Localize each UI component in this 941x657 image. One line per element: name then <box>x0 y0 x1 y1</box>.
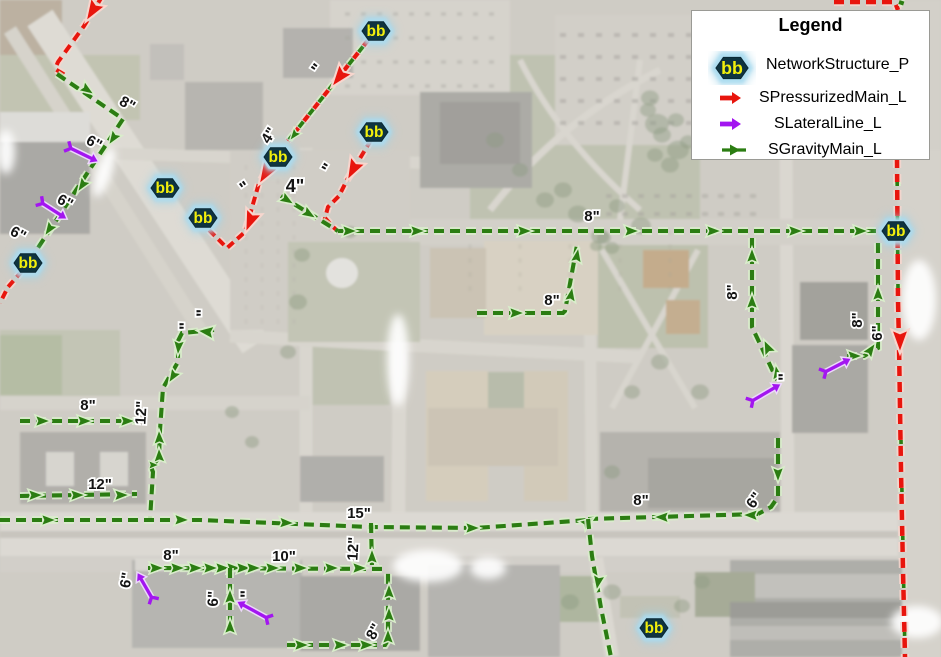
svg-text:bb: bb <box>721 58 743 78</box>
svg-text:bb: bb <box>365 124 384 141</box>
svg-text:8": 8" <box>163 547 178 564</box>
svg-text:6": 6" <box>117 571 136 589</box>
svg-text:8": 8" <box>544 292 559 309</box>
svg-text:": " <box>193 309 212 317</box>
svg-text:": " <box>176 322 195 330</box>
svg-text:": " <box>775 373 794 381</box>
svg-text:15": 15" <box>347 505 371 522</box>
svg-text:bb: bb <box>194 210 213 227</box>
svg-text:12": 12" <box>132 400 150 425</box>
svg-text:8": 8" <box>633 492 648 509</box>
svg-text:12": 12" <box>88 476 112 493</box>
svg-text:12": 12" <box>344 536 362 561</box>
svg-text:": " <box>237 590 256 598</box>
svg-text:8": 8" <box>80 397 95 414</box>
svg-text:bb: bb <box>367 23 386 40</box>
svg-text:10": 10" <box>272 548 296 565</box>
svg-text:8": 8" <box>724 284 741 299</box>
svg-text:bb: bb <box>887 223 906 240</box>
svg-text:4": 4" <box>286 176 305 196</box>
svg-text:8": 8" <box>584 208 599 225</box>
svg-text:bb: bb <box>645 620 664 637</box>
svg-text:8": 8" <box>849 312 866 327</box>
svg-text:bb: bb <box>156 180 175 197</box>
svg-text:bb: bb <box>269 149 288 166</box>
svg-text:6": 6" <box>869 325 886 340</box>
svg-text:bb: bb <box>19 255 38 272</box>
svg-text:6": 6" <box>205 591 223 607</box>
